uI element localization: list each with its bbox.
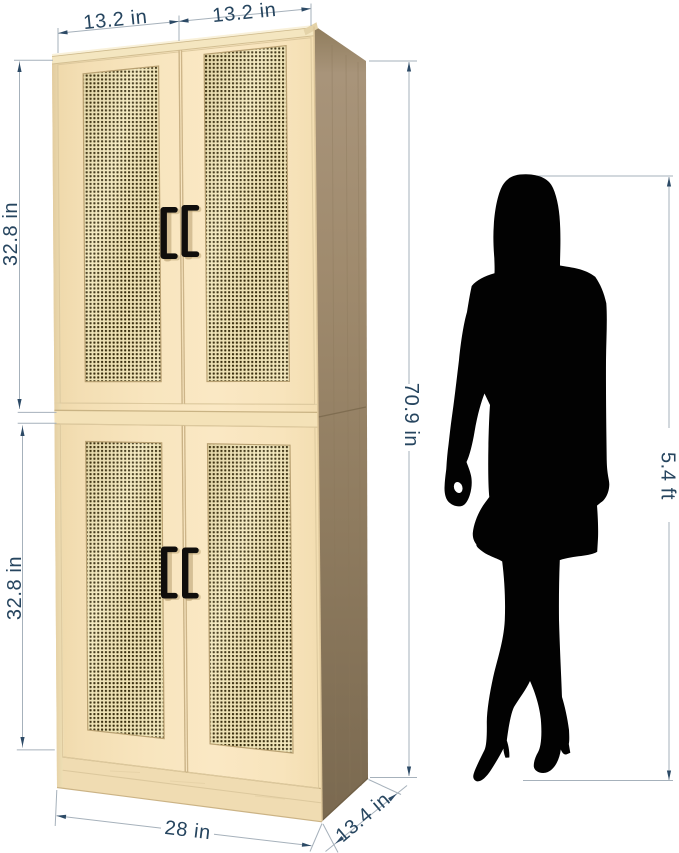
svg-text:32.8 in: 32.8 in	[4, 556, 26, 620]
svg-text:32.8 in: 32.8 in	[0, 202, 22, 266]
svg-text:5.4 ft: 5.4 ft	[656, 452, 678, 500]
svg-text:70.9 in: 70.9 in	[400, 383, 422, 447]
